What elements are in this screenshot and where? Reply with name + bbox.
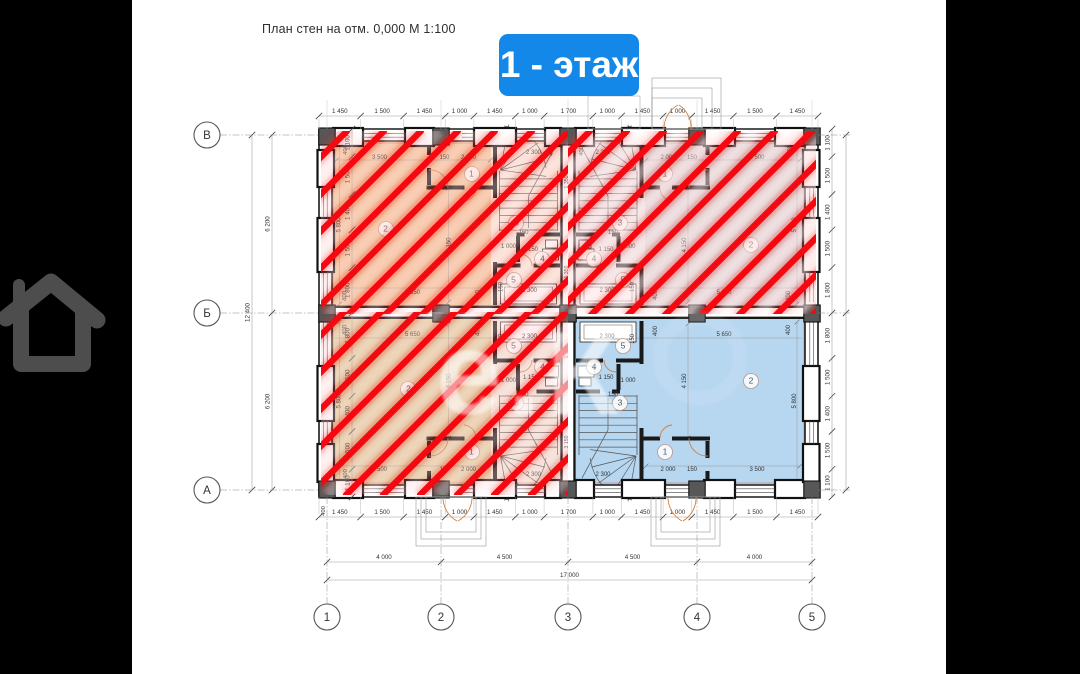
- svg-text:5 800: 5 800: [792, 393, 798, 409]
- svg-text:1 000: 1 000: [670, 509, 686, 516]
- svg-text:1 500: 1 500: [825, 442, 832, 458]
- svg-text:1 450: 1 450: [705, 108, 721, 115]
- svg-text:1 450: 1 450: [789, 108, 805, 115]
- svg-text:1 100: 1 100: [825, 135, 832, 151]
- svg-text:1 000: 1 000: [452, 108, 468, 115]
- svg-text:4: 4: [694, 612, 701, 624]
- svg-text:В: В: [203, 130, 211, 142]
- svg-text:1 800: 1 800: [825, 282, 832, 298]
- svg-text:4 150: 4 150: [682, 373, 688, 389]
- svg-text:2 300: 2 300: [595, 472, 611, 478]
- svg-text:1 450: 1 450: [789, 509, 805, 516]
- svg-text:17 000: 17 000: [560, 572, 579, 579]
- svg-text:1 450: 1 450: [487, 108, 503, 115]
- svg-text:2: 2: [438, 612, 444, 624]
- svg-text:12 400: 12 400: [245, 302, 252, 321]
- svg-text:1 500: 1 500: [825, 240, 832, 256]
- svg-text:6 200: 6 200: [265, 393, 272, 409]
- svg-text:е.К: е.К: [436, 308, 624, 440]
- svg-text:1 500: 1 500: [747, 509, 763, 516]
- svg-text:1 500: 1 500: [374, 509, 390, 516]
- svg-text:4 500: 4 500: [625, 554, 641, 561]
- svg-text:Б: Б: [203, 308, 211, 320]
- svg-text:1 000: 1 000: [599, 108, 615, 115]
- svg-text:1 500: 1 500: [825, 369, 832, 385]
- svg-text:1 500: 1 500: [825, 167, 832, 183]
- svg-text:1 000: 1 000: [522, 108, 538, 115]
- svg-text:150: 150: [687, 467, 698, 473]
- svg-text:3 500: 3 500: [749, 467, 765, 473]
- svg-text:1 450: 1 450: [332, 509, 348, 516]
- svg-text:1 800: 1 800: [825, 327, 832, 343]
- svg-text:3: 3: [565, 612, 571, 624]
- svg-text:1 450: 1 450: [417, 108, 433, 115]
- svg-text:2: 2: [749, 376, 754, 386]
- svg-text:400: 400: [653, 325, 659, 336]
- svg-text:1 450: 1 450: [705, 509, 721, 516]
- svg-text:4 500: 4 500: [497, 554, 513, 561]
- svg-text:1 700: 1 700: [561, 108, 577, 115]
- svg-text:6 200: 6 200: [265, 216, 272, 232]
- svg-text:2 000: 2 000: [660, 467, 676, 473]
- svg-text:А: А: [203, 485, 211, 497]
- svg-text:400: 400: [321, 506, 327, 516]
- svg-text:1: 1: [663, 447, 668, 457]
- svg-text:1 500: 1 500: [374, 108, 390, 115]
- svg-text:1 700: 1 700: [561, 509, 577, 516]
- svg-text:1 450: 1 450: [417, 509, 433, 516]
- svg-text:1 000: 1 000: [599, 509, 615, 516]
- svg-text:4 000: 4 000: [376, 554, 392, 561]
- svg-text:1 000: 1 000: [522, 509, 538, 516]
- svg-text:5: 5: [809, 612, 815, 624]
- svg-text:1 450: 1 450: [635, 509, 651, 516]
- svg-text:1 450: 1 450: [487, 509, 503, 516]
- svg-text:150: 150: [630, 333, 636, 344]
- svg-text:1 100: 1 100: [825, 475, 832, 491]
- svg-text:1 450: 1 450: [332, 108, 348, 115]
- svg-text:1 450: 1 450: [635, 108, 651, 115]
- svg-text:1 400: 1 400: [825, 405, 832, 421]
- svg-text:1 500: 1 500: [747, 108, 763, 115]
- svg-text:1: 1: [324, 612, 330, 624]
- svg-text:4 000: 4 000: [747, 554, 763, 561]
- svg-text:1 400: 1 400: [825, 204, 832, 220]
- svg-text:400: 400: [786, 324, 792, 335]
